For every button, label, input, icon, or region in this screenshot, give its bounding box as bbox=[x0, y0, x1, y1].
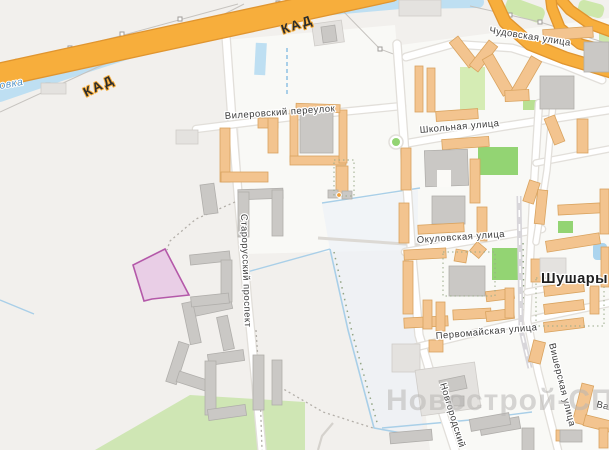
building-industrial bbox=[560, 430, 582, 442]
building bbox=[399, 0, 441, 16]
building-kindergarten bbox=[432, 196, 465, 224]
land-plot-highlight[interactable] bbox=[133, 249, 189, 301]
building-industrial bbox=[392, 344, 420, 372]
building-construction bbox=[300, 112, 333, 153]
building-residential bbox=[290, 110, 298, 162]
sports-field bbox=[492, 248, 520, 280]
park bbox=[460, 67, 485, 110]
building bbox=[41, 83, 66, 94]
building-industrial bbox=[522, 428, 534, 450]
building-residential bbox=[399, 203, 409, 243]
building-residential bbox=[221, 172, 268, 182]
building-residential bbox=[470, 159, 480, 203]
building-residential bbox=[401, 148, 411, 190]
building-construction bbox=[272, 360, 282, 405]
building-residential bbox=[577, 119, 588, 153]
building-construction bbox=[217, 315, 235, 351]
building-residential bbox=[404, 248, 446, 260]
building-residential bbox=[436, 302, 445, 331]
building-residential bbox=[599, 428, 608, 448]
power-pylon bbox=[378, 47, 382, 51]
building-construction bbox=[205, 361, 216, 415]
building bbox=[176, 130, 198, 144]
building-residential bbox=[415, 66, 423, 112]
power-pylon bbox=[178, 17, 182, 21]
roundabout-green bbox=[392, 138, 400, 146]
building-construction bbox=[253, 355, 264, 410]
building bbox=[342, 191, 352, 199]
building-school bbox=[540, 76, 574, 109]
building-residential bbox=[423, 300, 432, 329]
footpath bbox=[318, 423, 333, 450]
stream bbox=[0, 300, 34, 314]
building-residential bbox=[590, 286, 599, 314]
building-residential bbox=[268, 118, 278, 153]
building-construction bbox=[200, 183, 218, 215]
map-tiles: КАДКАДВилеровский переулокЧудовская улиц… bbox=[0, 0, 609, 450]
building-residential bbox=[505, 288, 514, 318]
building bbox=[321, 25, 337, 43]
power-pylon bbox=[538, 20, 542, 24]
building-residential bbox=[558, 203, 600, 215]
building-residential bbox=[454, 249, 468, 263]
pond bbox=[254, 43, 267, 76]
building-residential bbox=[339, 110, 347, 163]
building-residential bbox=[505, 89, 530, 101]
building-residential bbox=[290, 156, 346, 165]
building-residential bbox=[427, 68, 435, 112]
building-residential bbox=[531, 259, 541, 282]
sports-field bbox=[478, 147, 518, 175]
sports-field bbox=[558, 221, 573, 233]
building-residential bbox=[600, 189, 609, 234]
building-residential bbox=[403, 261, 413, 314]
road-label-kad: КАД bbox=[81, 72, 117, 100]
building-kindergarten bbox=[449, 266, 485, 296]
map-canvas[interactable]: КАДКАДВилеровский переулокЧудовская улиц… bbox=[0, 0, 609, 450]
footpath bbox=[167, 202, 235, 250]
building-construction bbox=[272, 190, 283, 236]
building bbox=[584, 42, 609, 72]
poi-marker bbox=[337, 193, 342, 198]
settlement-label: Шушары bbox=[541, 271, 608, 287]
courtyard bbox=[437, 170, 451, 187]
